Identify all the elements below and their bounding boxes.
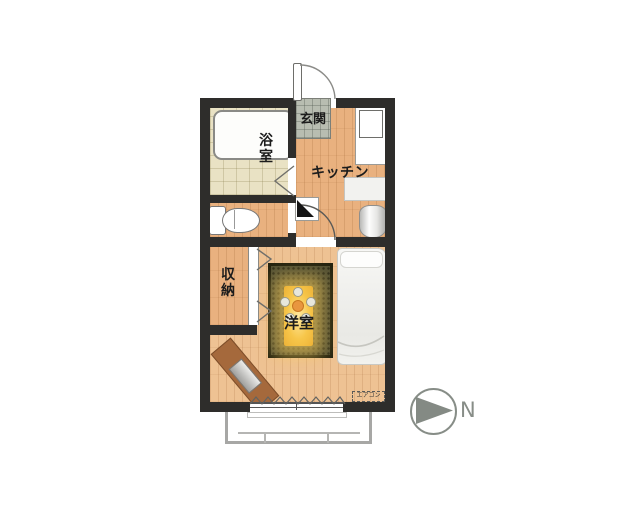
balcony-left-rail <box>225 412 228 443</box>
balcony-bottom-rail <box>225 441 372 444</box>
wall-divider-left <box>200 237 296 247</box>
wall-top-left <box>200 98 292 108</box>
toilet-seat-line <box>234 210 235 229</box>
balcony-divider-tick-2 <box>327 432 329 443</box>
kitchen-room-door-opening <box>296 237 336 247</box>
aircon-box: エアコン <box>352 391 385 402</box>
bathroom-door-opening <box>288 158 296 198</box>
compass-needle-icon <box>412 390 454 432</box>
wall-storage-bottom <box>200 325 257 335</box>
kitchen-label: キッチン <box>311 165 371 181</box>
balcony-right-rail <box>369 412 372 443</box>
compass <box>410 388 457 435</box>
wall-right <box>385 98 395 412</box>
storage-label: 収納 <box>220 267 236 299</box>
laundry-pan-square <box>359 110 383 138</box>
sliding-window-tick <box>296 404 297 410</box>
wall-left <box>200 98 210 412</box>
closet-door-strip <box>248 247 259 325</box>
aircon-label: エアコン <box>356 393 380 400</box>
entrance-door-leaf <box>293 63 302 101</box>
wall-bottom-left <box>200 402 250 412</box>
window-sill <box>247 412 347 418</box>
door-post-square <box>295 197 319 221</box>
water-heater-cylinder <box>359 205 387 238</box>
entrance-door-arc <box>300 65 335 99</box>
north-label: N <box>460 398 476 422</box>
balcony-inner-rail <box>238 432 360 434</box>
wall-bath-kitchen-upper <box>288 98 296 158</box>
bathroom-label: 浴室 <box>258 133 274 165</box>
wall-bath-kitchen-stub <box>288 198 296 203</box>
entrance-label: 玄関 <box>297 113 329 128</box>
wall-divider-right <box>336 237 395 247</box>
floorplan-canvas: エアコン 玄関 浴室 キッチン 収納 洋室 N <box>0 0 640 512</box>
wall-bath-toilet <box>200 195 296 203</box>
balcony-divider-tick-1 <box>264 432 266 443</box>
wall-bottom-right <box>343 402 395 412</box>
toilet-bowl <box>222 208 260 233</box>
bathtub <box>213 110 294 160</box>
bed-pillow <box>340 251 383 268</box>
western-room-label: 洋室 <box>277 315 321 332</box>
